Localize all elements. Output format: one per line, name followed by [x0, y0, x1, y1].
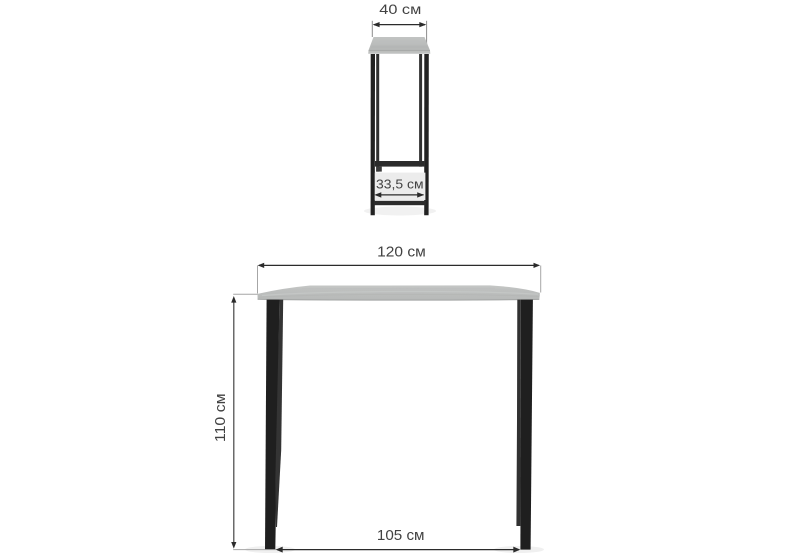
svg-text:105 см: 105 см — [377, 527, 425, 544]
svg-text:110 см: 110 см — [212, 393, 229, 442]
svg-text:40 см: 40 см — [379, 2, 421, 17]
svg-text:33,5 см: 33,5 см — [376, 176, 424, 191]
svg-text:120 см: 120 см — [377, 243, 426, 260]
